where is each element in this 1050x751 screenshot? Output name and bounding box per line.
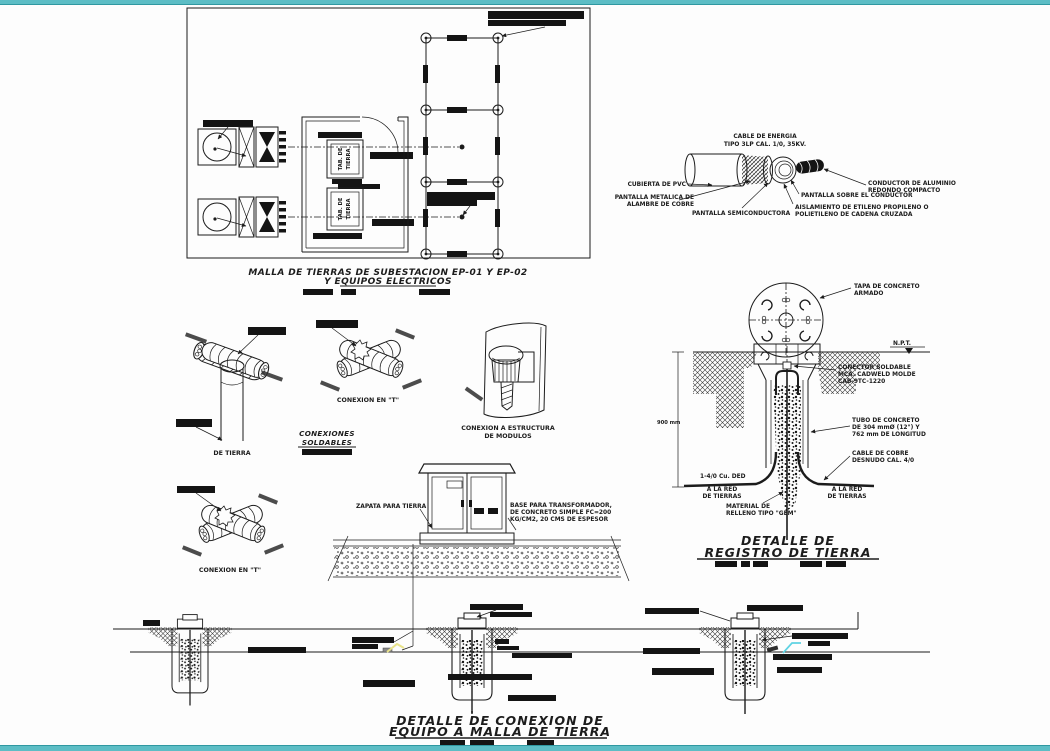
semiconductor-label: PANTALLA SEMICONDUCTORA xyxy=(692,211,791,217)
ground-board-1: TAB. DE TIERRA xyxy=(327,140,363,178)
relleno-line2: RELLENO TIPO "GEM" xyxy=(726,511,797,517)
transformer-unit-2 xyxy=(198,197,286,237)
ground-rod-connection: DE TIERRA xyxy=(176,327,286,457)
t-connection2-label: CONEXION EN "T" xyxy=(199,567,261,574)
right-net-line2: DE TIERRAS xyxy=(827,494,866,500)
cable-title-line1: CABLE DE ENERGIA xyxy=(733,134,797,140)
module-title-line2: DE MODULOS xyxy=(484,433,532,440)
board2-label-line2: TIERRA xyxy=(346,198,352,219)
insulation-line2: POLIETILENO DE CADENA CRUZADA xyxy=(795,212,913,218)
plan-title: MALLA DE TIERRAS DE SUBESTACION EP-01 Y … xyxy=(248,268,527,295)
t-connection-2: CONEXION EN "T" xyxy=(177,486,284,574)
t-connection-label: CONEXION EN "T" xyxy=(337,397,399,404)
tapa-line2: ARMADO xyxy=(854,291,883,297)
left-net-line1: A LA RED xyxy=(707,487,738,493)
substation-grounding-plan: TAB. DE TIERRA TAB. DE TIERRA MALLA DE T… xyxy=(187,8,590,295)
board1-label-line2: TIERRA xyxy=(346,148,352,169)
board2-label-line1: TAB. DE xyxy=(338,197,344,220)
equipment-to-mesh-section: DETALLE DE CONEXION DE EQUIPO A MALLA DE… xyxy=(113,604,930,745)
metal-screen-line2: ALAMBRE DE COBRE xyxy=(627,202,694,208)
metal-screen-line1: PANTALLA METALICA DE xyxy=(615,195,694,201)
grounding-grid xyxy=(421,33,503,259)
insulation-line1: AISLAMIENTO DE ETILENO PROPILENO O xyxy=(795,205,929,211)
soldables-line2: SOLDABLES xyxy=(302,438,352,447)
cable-line1: CABLE DE COBRE xyxy=(852,451,909,457)
right-net-line1: A LA RED xyxy=(832,487,863,493)
tubo-line1: TUBO DE CONCRETO xyxy=(852,418,919,424)
module-structure-connection: CONEXION A ESTRUCTURA DE MODULOS xyxy=(461,323,555,440)
cad-drawing-page: TAB. DE TIERRA TAB. DE TIERRA MALLA DE T… xyxy=(0,0,1050,751)
tubo-line2: DE 304 mmØ (12") Y xyxy=(852,424,920,431)
bottom-title: DETALLE DE CONEXION DE EQUIPO A MALLA DE… xyxy=(389,711,611,745)
zapata-label: ZAPATA PARA TIERRA xyxy=(356,504,427,510)
tapa-line1: TAPA DE CONCRETO xyxy=(854,284,920,290)
ground-board-2: TAB. DE TIERRA xyxy=(327,188,363,230)
soldables-title: CONEXIONES SOLDABLES xyxy=(298,429,356,455)
power-cable-detail: CABLE DE ENERGIA TIPO 3LP CAL. 1/0, 35KV… xyxy=(615,134,956,218)
rod-label: DE TIERRA xyxy=(213,450,250,457)
conductor-line1: CONDUCTOR DE ALUMINIO xyxy=(868,181,956,187)
module-title-line1: CONEXION A ESTRUCTURA xyxy=(461,425,555,432)
cable-run-label: 1-4/0 Cu. DED xyxy=(700,474,746,480)
soldables-line1: CONEXIONES xyxy=(299,429,355,438)
conector-line3: CAB-9TC-1220 xyxy=(838,379,885,385)
register-title-line2: REGISTRO DE TIERRA xyxy=(704,545,871,560)
npt-label: N.P.T. xyxy=(893,341,911,347)
redacted-labels xyxy=(488,11,584,26)
shield-label: PANTALLA SOBRE EL CONDUCTOR xyxy=(801,193,913,199)
board1-label-line1: TAB. DE xyxy=(338,147,344,170)
cable-title-line2: TIPO 3LP CAL. 1/0, 35KV. xyxy=(724,142,806,148)
relleno-line1: MATERIAL DE xyxy=(726,504,770,510)
t-connection-1: CONEXION EN "T" xyxy=(316,320,422,404)
cabinet xyxy=(419,464,515,544)
cable-labels: CUBIERTA DE PVC PANTALLA METALICA DE ALA… xyxy=(615,169,956,218)
conector-line1: CONECTOR SOLDABLE xyxy=(838,365,911,371)
base-label-line3: KG/CM2, 20 CMS DE ESPESOR xyxy=(510,517,609,523)
jacket-label: CUBIERTA DE PVC xyxy=(628,182,686,188)
register-section: N.P.T. 900 m xyxy=(657,341,930,540)
register-title: DETALLE DE REGISTRO DE TIERRA xyxy=(697,533,879,567)
base-label-line1: BASE PARA TRANSFORMADOR, xyxy=(510,503,612,509)
cable-line2: DESNUDO CAL. 4/0 xyxy=(852,458,914,464)
left-net-line2: DE TIERRAS xyxy=(702,494,741,500)
ground-register-detail: TAPA DE CONCRETO ARMADO N.P.T. xyxy=(657,283,930,567)
depth-dimension: 900 mm xyxy=(657,420,680,426)
welded-connections: DE TIERRA CONEXION EN "T" CONEXIONES SOL… xyxy=(176,320,422,574)
drawing-canvas: TAB. DE TIERRA TAB. DE TIERRA MALLA DE T… xyxy=(0,0,1050,751)
yellow-tap-highlight xyxy=(383,644,413,652)
base-label-line2: DE CONCRETO SIMPLE FC=200 xyxy=(510,510,611,516)
tubo-line3: 762 mm DE LONGITUD xyxy=(852,432,926,438)
equipment-room: TAB. DE TIERRA TAB. DE TIERRA xyxy=(302,117,408,252)
transformer-unit-1 xyxy=(198,120,286,167)
cable-cutaway-drawing xyxy=(685,154,825,186)
bottom-title-line2: EQUIPO A MALLA DE TIERRA xyxy=(389,724,611,739)
conector-line2: MCA. CADWELD MOLDE xyxy=(838,372,916,378)
